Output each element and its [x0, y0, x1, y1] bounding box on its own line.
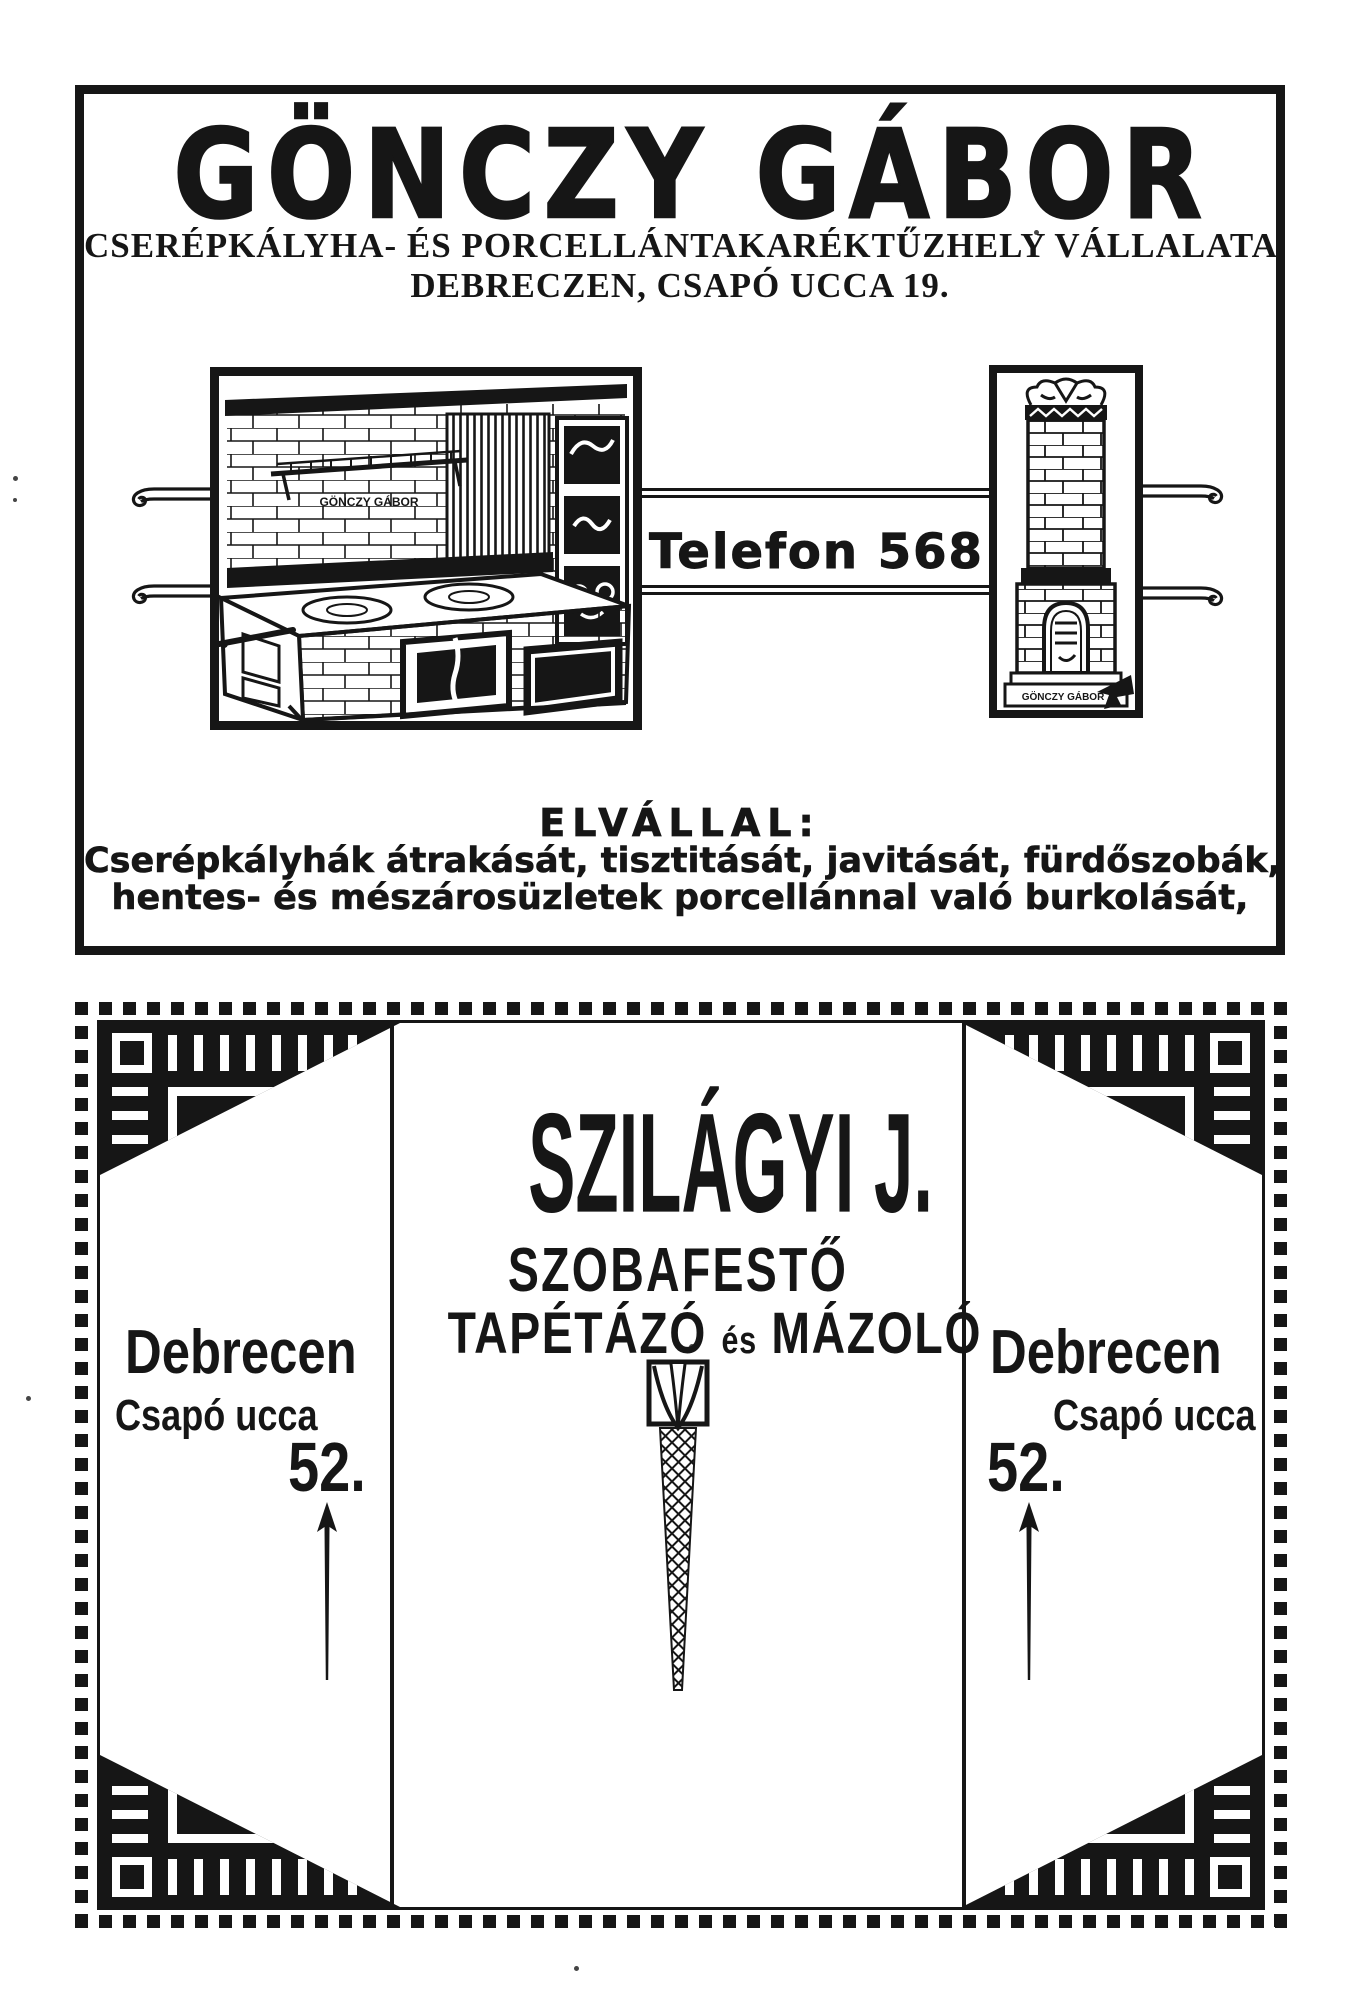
advertiser-name-heading: GÖNCZY GÁBOR — [173, 114, 1186, 236]
address-line: DEBRECZEN, CSAPÓ UCCA 19. — [84, 268, 1276, 305]
scan-speck — [26, 1396, 31, 1401]
services-heading: ELVÁLLAL: — [84, 801, 1276, 845]
advertiser-name: SZILÁGYI J. — [528, 1092, 828, 1233]
right-street: Csapó ucca — [1053, 1394, 1256, 1438]
scroll-rule-right-lower — [1143, 583, 1227, 607]
up-arrow-icon — [1017, 1500, 1041, 1682]
scanned-advert-page: GÖNCZY GÁBOR CSERÉPKÁLYHA- ÉS PORCELLÁNT… — [0, 0, 1348, 2000]
double-rule-upper — [642, 488, 989, 498]
tile-stove-illustration-frame: GÖNCZY GÁBOR — [989, 365, 1143, 718]
trade-line-1: SZOBAFESTŐ — [462, 1240, 894, 1302]
corner-ornament-top-left — [100, 1023, 400, 1175]
double-rule-lower — [642, 585, 989, 595]
right-house-number: 52. — [987, 1432, 1065, 1502]
trade-conjunction: és — [722, 1320, 757, 1362]
corner-ornament-bottom-right — [962, 1755, 1262, 1907]
stove-base-label: GÖNCZY GÁBOR — [1022, 690, 1105, 703]
trade-mazolo: MÁZOLÓ — [771, 1301, 982, 1366]
gonczy-gabor-ad: GÖNCZY GÁBOR CSERÉPKÁLYHA- ÉS PORCELLÁNT… — [75, 85, 1285, 955]
scan-speck — [13, 498, 17, 502]
tassel-ornament — [646, 1358, 710, 1694]
corner-ornament-bottom-left — [100, 1755, 400, 1907]
telephone-number: Telefon 568 — [644, 524, 989, 580]
services-line-1: Cserépkályhák átrakását, tisztitását, ja… — [84, 844, 1276, 879]
business-description-line: CSERÉPKÁLYHA- ÉS PORCELLÁNTAKARÉKTŰZHELY… — [84, 228, 1276, 265]
scan-speck — [13, 476, 18, 481]
services-line-2: hentes- és mészárosüzletek porcellánnal … — [84, 881, 1276, 916]
corner-ornament-top-right — [962, 1023, 1262, 1175]
dashed-border-right — [1274, 1002, 1287, 1928]
scan-speck — [689, 1344, 695, 1350]
left-house-number: 52. — [288, 1432, 366, 1502]
up-arrow-icon — [315, 1500, 339, 1682]
szilagyi-ad: SZILÁGYI J. SZOBAFESTŐ TAPÉTÁZÓ és MÁZOL… — [75, 1000, 1287, 1932]
trade-line-2: TAPÉTÁZÓ és MÁZOLÓ — [448, 1305, 909, 1363]
kitchen-range-illustration-frame: GÖNCZY GÁBOR — [210, 367, 642, 730]
dashed-border-bottom — [75, 1915, 1287, 1928]
range-plate-label: GÖNCZY GÁBOR — [319, 494, 418, 509]
trade-tapetazo: TAPÉTÁZÓ — [448, 1301, 707, 1366]
scroll-rule-right-upper — [1143, 481, 1227, 505]
left-city: Debrecen — [125, 1322, 357, 1384]
right-city: Debrecen — [990, 1322, 1222, 1384]
dashed-border-left — [75, 1002, 88, 1928]
scan-speck — [574, 1966, 579, 1971]
scroll-rule-left-upper — [128, 484, 212, 508]
dashed-border-top — [75, 1002, 1287, 1015]
tile-stove-illustration: GÖNCZY GÁBOR — [997, 373, 1135, 710]
kitchen-range-illustration: GÖNCZY GÁBOR — [219, 376, 633, 721]
scroll-rule-left-lower — [128, 581, 212, 605]
